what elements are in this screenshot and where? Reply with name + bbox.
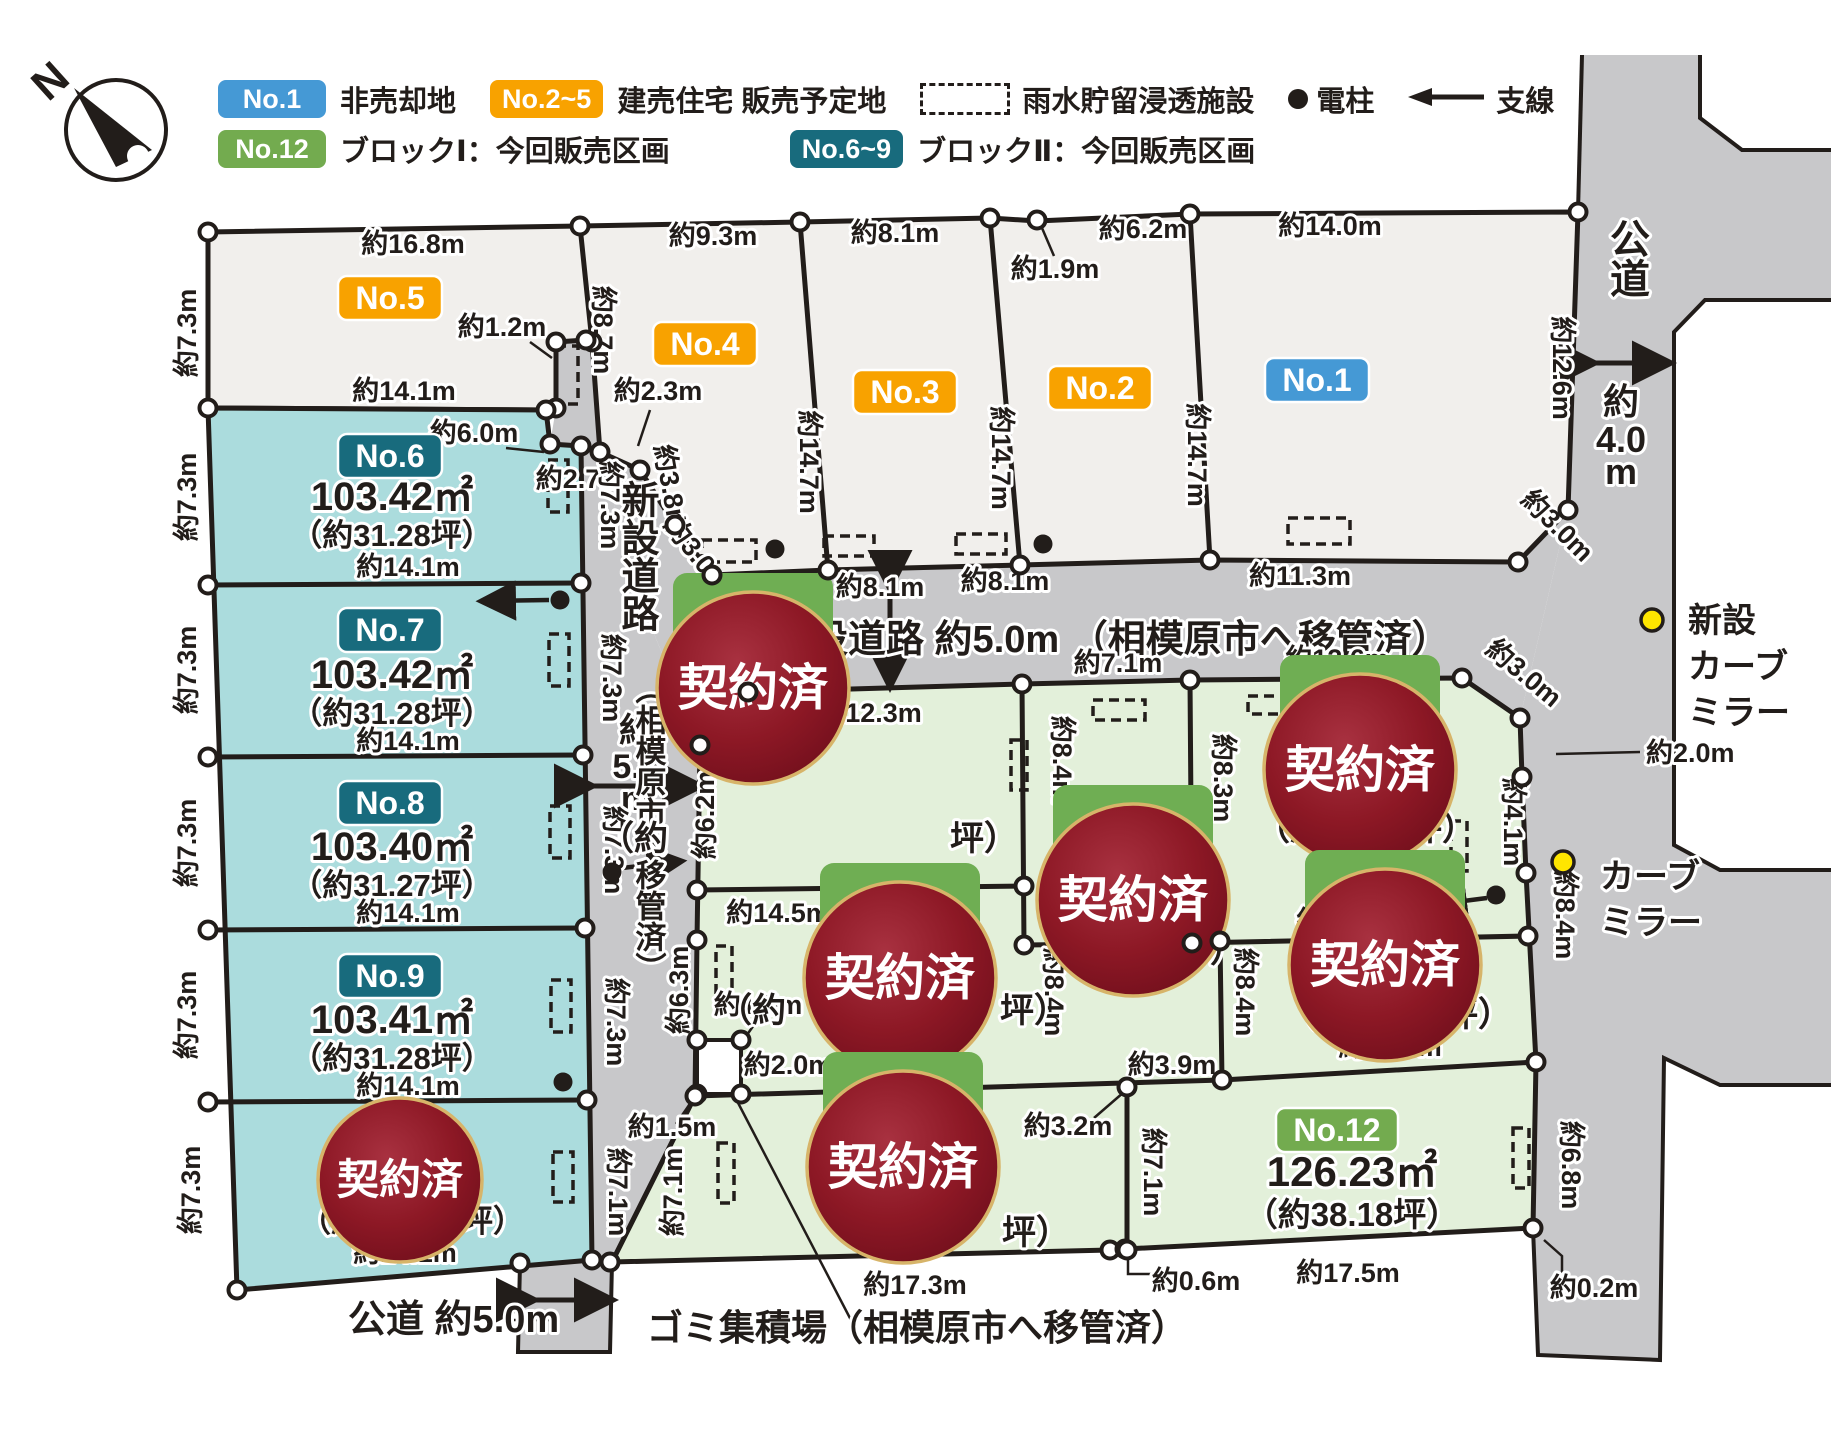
map-label: 約14.1m bbox=[352, 375, 456, 406]
map-label: 126.23㎡ bbox=[1267, 1148, 1437, 1195]
sold-marker: 契約済 bbox=[1037, 785, 1229, 996]
vertex-dot bbox=[820, 562, 837, 579]
map-label: （約 bbox=[600, 819, 668, 858]
legend-label-planned: 建売住宅 販売予定地 bbox=[617, 78, 886, 120]
map-label: 公道 bbox=[1604, 218, 1650, 298]
vertex-dot bbox=[733, 1086, 750, 1103]
utility-pole bbox=[603, 863, 622, 882]
legend-row-1: No.1 非売却地 No.2~5 建売住宅 販売予定地 雨水貯留浸透施設 電柱 … bbox=[218, 78, 1588, 120]
map-label: 約17.5m bbox=[1296, 1257, 1400, 1288]
vertex-dot bbox=[1518, 865, 1535, 882]
vertex-dot bbox=[592, 444, 609, 461]
vertex-dot bbox=[1012, 557, 1029, 574]
map-label: ゴミ集積場（相模原市へ移管済） bbox=[647, 1307, 1187, 1348]
map-label: 約7.1m bbox=[1138, 1128, 1169, 1217]
map-label: 約7.1m bbox=[1074, 647, 1163, 678]
map-label: 約7.3m bbox=[171, 626, 202, 715]
map-label: 約3.2m bbox=[1024, 1110, 1113, 1141]
sold-marker: 契約済 bbox=[657, 573, 849, 784]
map-label: N bbox=[22, 52, 78, 110]
sold-label: 契約済 bbox=[1310, 937, 1461, 993]
map-label: 約14.7m bbox=[794, 410, 825, 514]
map-label: 約3.9m bbox=[1128, 1049, 1217, 1080]
map-label: 約2.3m bbox=[614, 375, 703, 406]
sold-label: 契約済 bbox=[828, 1139, 979, 1195]
lot-badge-label: No.2 bbox=[1065, 370, 1134, 406]
vertex-dot bbox=[792, 214, 809, 231]
vertex-dot bbox=[229, 1282, 246, 1299]
map-label: 約14.7m bbox=[986, 406, 1017, 510]
vertex-dot bbox=[1570, 204, 1587, 221]
sold-label: 契約済 bbox=[337, 1156, 464, 1203]
map-label: 約8.1m bbox=[961, 565, 1050, 596]
map-label: 約12.6m bbox=[1547, 316, 1578, 420]
vertex-dot bbox=[1182, 672, 1199, 689]
vertex-dot bbox=[577, 920, 594, 937]
vertex-dot bbox=[1214, 1072, 1231, 1089]
legend-row-2: No.12 ブロックⅠ：今回販売区画 No.6~9 ブロックⅡ：今回販売区画 bbox=[218, 128, 1588, 170]
vertex-dot bbox=[1014, 676, 1031, 693]
vertex-dot bbox=[584, 1252, 601, 1269]
vertex-dot bbox=[1212, 933, 1229, 950]
lot-badge-label: No.7 bbox=[355, 612, 424, 648]
vertex-dot bbox=[689, 932, 706, 949]
vertex-dot bbox=[1119, 1242, 1136, 1259]
map-label: 坪） bbox=[950, 819, 1018, 858]
lot-badge-label: No.4 bbox=[670, 326, 740, 362]
map-label: 坪） bbox=[1000, 991, 1068, 1030]
vertex-dot bbox=[578, 332, 595, 349]
vertex-dot bbox=[1202, 552, 1219, 569]
map-label: 坪） bbox=[1002, 1213, 1070, 1252]
map-label: 新設 bbox=[1688, 602, 1756, 640]
legend-badge-no12: No.12 bbox=[218, 130, 326, 168]
map-label: 約7.1m bbox=[603, 1148, 634, 1237]
map-label: m bbox=[1605, 451, 1637, 492]
map-label: 約1.5m bbox=[628, 1111, 717, 1142]
lot-badge-label: No.9 bbox=[355, 958, 424, 994]
legend-label-unsold: 非売却地 bbox=[340, 78, 456, 120]
compass bbox=[66, 80, 166, 180]
map-label: 約6.2m bbox=[1099, 213, 1188, 244]
sold-label: 契約済 bbox=[825, 950, 976, 1006]
sold-marker: 契約済 bbox=[807, 1052, 999, 1263]
lot-badge-label: No.8 bbox=[355, 785, 424, 821]
sold-marker: 契約済 bbox=[804, 863, 996, 1074]
map-label: 約7.3m bbox=[175, 1146, 206, 1235]
map-label: 約7.3m bbox=[595, 461, 626, 550]
vertex-dot bbox=[1119, 1079, 1136, 1096]
utility-pole bbox=[1034, 535, 1053, 554]
map-label: 約14.0m bbox=[1278, 210, 1382, 241]
curve-mirror bbox=[1641, 609, 1663, 631]
utility-pole bbox=[551, 591, 570, 610]
utility-pole bbox=[554, 1073, 573, 1092]
map-label: （約31.28坪） bbox=[291, 518, 493, 553]
lot-badge-label: No.6 bbox=[355, 438, 424, 474]
vertex-dot bbox=[1016, 937, 1033, 954]
map-label: 約7.3m bbox=[171, 289, 202, 378]
vertex-dot bbox=[1184, 935, 1201, 952]
vertex-dot bbox=[512, 1255, 529, 1272]
map-label: 約6.8m bbox=[1556, 1121, 1587, 1210]
lot-badge-label: No.3 bbox=[870, 374, 939, 410]
legend: No.1 非売却地 No.2~5 建売住宅 販売予定地 雨水貯留浸透施設 電柱 … bbox=[218, 78, 1588, 178]
vertex-dot bbox=[573, 575, 590, 592]
lot-badge-label: No.1 bbox=[1282, 362, 1351, 398]
vertex-dot bbox=[548, 334, 565, 351]
legend-label-rainwater: 雨水貯留浸透施設 bbox=[1022, 78, 1254, 120]
legend-label-pole: 電柱 bbox=[1316, 78, 1374, 120]
vertex-dot bbox=[1525, 1220, 1542, 1237]
map-label: 約8.1m bbox=[836, 571, 925, 602]
map-label: 約 bbox=[1603, 381, 1639, 422]
vertex-dot bbox=[1528, 1054, 1545, 1071]
vertex-dot bbox=[602, 1254, 619, 1271]
map-label: 約14.1m bbox=[356, 725, 460, 756]
vertex-dot bbox=[982, 210, 999, 227]
vertex-dot bbox=[740, 684, 757, 701]
map-label: カーブ bbox=[1600, 857, 1700, 896]
map-label: カーブ bbox=[1688, 647, 1788, 686]
map-label: 約14.1m bbox=[356, 897, 460, 928]
map-label: 103.40㎡ bbox=[311, 824, 473, 869]
legend-label-guywire: 支線 bbox=[1496, 78, 1554, 120]
map-label: 103.41㎡ bbox=[311, 997, 473, 1042]
map-label: ミラー bbox=[1600, 904, 1702, 942]
vertex-dot bbox=[575, 747, 592, 764]
utility-pole bbox=[1487, 886, 1506, 905]
lot-map-page: No.1 非売却地 No.2~5 建売住宅 販売予定地 雨水貯留浸透施設 電柱 … bbox=[0, 0, 1831, 1441]
vertex-dot bbox=[1454, 670, 1471, 687]
map-label: 約0.2m bbox=[1550, 1272, 1639, 1303]
vertex-dot bbox=[1182, 206, 1199, 223]
map-label: 約7.3m bbox=[171, 971, 202, 1060]
vertex-dot bbox=[200, 922, 217, 939]
guy-wire-arrow bbox=[489, 600, 549, 601]
map-label: 約8.1m bbox=[851, 217, 940, 248]
rainwater-facility-icon bbox=[920, 83, 1010, 115]
vertex-dot bbox=[200, 400, 217, 417]
legend-label-block2: ブロックⅡ：今回販売区画 bbox=[917, 128, 1255, 170]
legend-badge-no6-9: No.6~9 bbox=[790, 130, 903, 168]
curve-mirror bbox=[1552, 851, 1574, 873]
map-label: 約7.3m bbox=[171, 799, 202, 888]
map-label: 約7.3m bbox=[601, 978, 632, 1067]
legend-badge-no2-5: No.2~5 bbox=[490, 80, 603, 118]
vertex-dot bbox=[573, 438, 590, 455]
map-label: 約11.3m bbox=[1249, 560, 1351, 591]
map-label: ミラー bbox=[1688, 694, 1790, 732]
vertex-dot bbox=[579, 1092, 596, 1109]
map-label: （約 bbox=[718, 991, 786, 1030]
map-label: 約2.0m bbox=[744, 1049, 833, 1080]
map-label: 約14.5m bbox=[726, 897, 830, 928]
vertex-dot bbox=[667, 517, 684, 534]
vertex-dot bbox=[1514, 769, 1531, 786]
map-label: 公道 約5.0m bbox=[348, 1299, 559, 1341]
sold-marker: 契約済 bbox=[318, 1098, 482, 1262]
map-label: 約17.3m bbox=[863, 1269, 967, 1300]
map-label: 約0.6m bbox=[1152, 1265, 1241, 1296]
map-label: 約8.7m bbox=[588, 286, 619, 375]
vertex-dot bbox=[1510, 554, 1527, 571]
vertex-dot bbox=[200, 749, 217, 766]
map-label: 約7.3m bbox=[597, 634, 628, 723]
legend-label-block1: ブロックⅠ：今回販売区画 bbox=[340, 128, 670, 170]
vertex-dot bbox=[1512, 710, 1529, 727]
map-label: 約7.3m bbox=[171, 453, 202, 542]
map-label: 約14.1m bbox=[356, 551, 460, 582]
vertex-dot bbox=[689, 882, 706, 899]
lot-badge-label: No.5 bbox=[355, 280, 424, 316]
map-label: 約2.0m bbox=[1646, 737, 1735, 768]
vertex-dot bbox=[689, 1032, 706, 1049]
vertex-dot bbox=[733, 1032, 750, 1049]
vertex-dot bbox=[542, 436, 559, 453]
vertex-dot bbox=[200, 577, 217, 594]
guy-wire-arrow-icon bbox=[1408, 83, 1486, 116]
vertex-dot bbox=[1029, 212, 1046, 229]
vertex-dot bbox=[200, 224, 217, 241]
vertex-dot bbox=[538, 402, 555, 419]
map-label: （約38.18坪） bbox=[1245, 1196, 1460, 1233]
legend-badge-no1: No.1 bbox=[218, 80, 326, 118]
map-label: 約16.8m bbox=[361, 228, 465, 259]
vertex-dot bbox=[1520, 928, 1537, 945]
sold-marker: 契約済 bbox=[1264, 655, 1456, 866]
map-label: 約9.3m bbox=[669, 220, 758, 251]
vertex-dot bbox=[200, 1094, 217, 1111]
map-label: 約7.1m bbox=[657, 1148, 688, 1237]
map-label: 約8.4m bbox=[1550, 871, 1581, 960]
vertex-dot bbox=[692, 737, 709, 754]
utility-pole-icon bbox=[1288, 89, 1308, 109]
map-label: 約14.7m bbox=[1182, 403, 1213, 507]
sold-label: 契約済 bbox=[1058, 872, 1209, 928]
map-label: 約4.1m bbox=[1498, 778, 1529, 867]
lot-badge-label: No.12 bbox=[1293, 1112, 1380, 1148]
map-label: 約1.2m bbox=[458, 311, 547, 342]
vertex-dot bbox=[687, 1088, 704, 1105]
vertex-dot bbox=[1560, 502, 1577, 519]
map-label: 約14.1m bbox=[356, 1070, 460, 1101]
site-plan-svg: N約16.8m約9.3m約8.1m約6.2m約1.9m約14.0m約8.7m約1… bbox=[0, 0, 1831, 1441]
map-label: 約6.3m bbox=[663, 946, 694, 1035]
vertex-dot bbox=[572, 218, 589, 235]
vertex-dot bbox=[704, 567, 721, 584]
sold-marker: 契約済 bbox=[1289, 850, 1481, 1061]
vertex-dot bbox=[1016, 878, 1033, 895]
vertex-dot bbox=[632, 462, 649, 479]
map-label: 約6.2m bbox=[689, 771, 720, 860]
map-label: 103.42㎡ bbox=[311, 474, 473, 519]
utility-pole bbox=[766, 540, 785, 559]
sold-label: 契約済 bbox=[1285, 742, 1436, 798]
map-label: 約1.9m bbox=[1011, 253, 1100, 284]
map-label: 103.42㎡ bbox=[311, 652, 473, 697]
